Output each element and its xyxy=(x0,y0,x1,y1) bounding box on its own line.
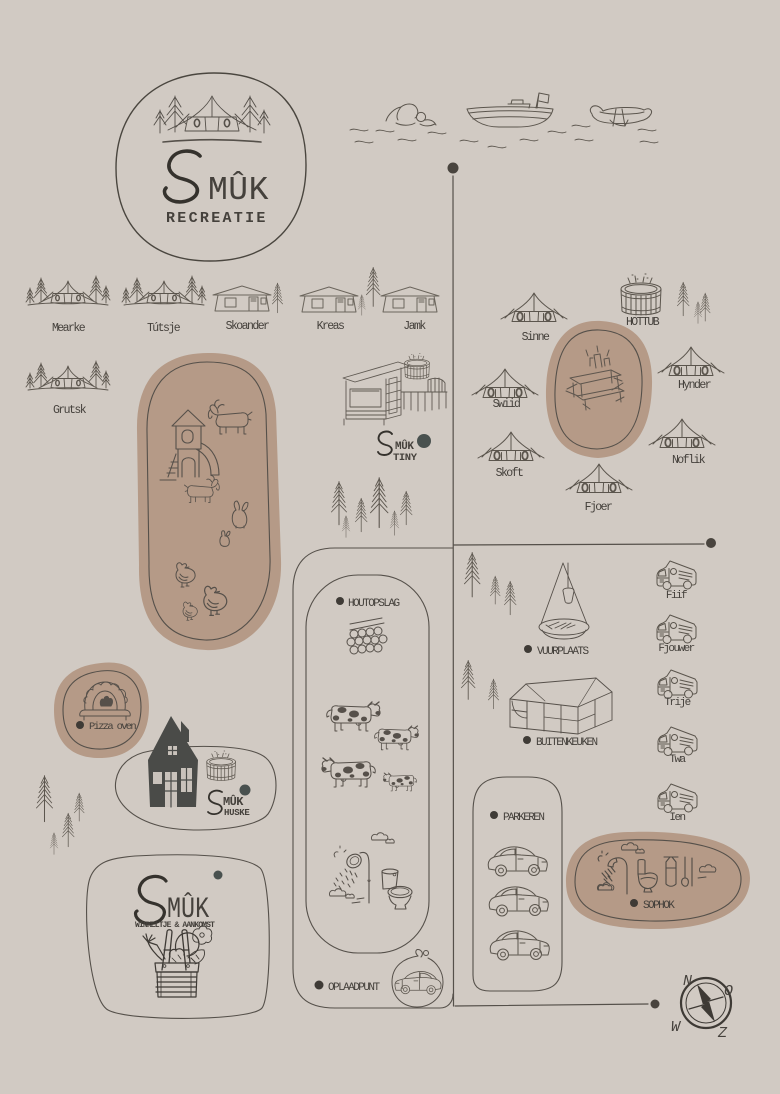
svg-text:Jamk: Jamk xyxy=(403,320,426,333)
svg-text:Skoft: Skoft xyxy=(496,467,523,480)
svg-text:Trije: Trije xyxy=(664,697,690,709)
svg-text:Kreas: Kreas xyxy=(317,320,344,333)
svg-text:Skoander: Skoander xyxy=(226,320,269,333)
svg-text:Fjouwer: Fjouwer xyxy=(658,643,694,655)
svg-text:PARKEREN: PARKEREN xyxy=(503,812,544,824)
svg-text:Ien: Ien xyxy=(669,812,685,824)
svg-text:Twa: Twa xyxy=(669,754,686,766)
svg-text:SOPHOK: SOPHOK xyxy=(643,900,675,912)
svg-text:HOUTOPSLAG: HOUTOPSLAG xyxy=(348,598,399,610)
svg-text:Z: Z xyxy=(717,1025,728,1042)
svg-text:Sinne: Sinne xyxy=(522,331,550,344)
svg-text:N: N xyxy=(683,973,692,990)
svg-text:Fiif: Fiif xyxy=(666,590,687,602)
svg-text:Hynder: Hynder xyxy=(678,379,711,392)
svg-text:WINKELTJE & AANKOMST: WINKELTJE & AANKOMST xyxy=(135,921,215,930)
svg-text:Swiid: Swiid xyxy=(493,398,520,411)
svg-text:BUITENKEUKEN: BUITENKEUKEN xyxy=(536,737,598,749)
svg-text:Grutsk: Grutsk xyxy=(53,404,87,417)
svg-text:VUURPLAATS: VUURPLAATS xyxy=(537,646,589,658)
svg-text:MÛK: MÛK xyxy=(208,171,269,209)
svg-text:O: O xyxy=(724,983,733,1000)
svg-text:TINY: TINY xyxy=(393,452,418,464)
svg-text:OPLAADPUNT: OPLAADPUNT xyxy=(328,982,380,994)
svg-text:RECREATIE: RECREATIE xyxy=(166,210,268,227)
svg-text:HOTTUB: HOTTUB xyxy=(626,316,660,329)
svg-text:Fjoer: Fjoer xyxy=(585,501,612,514)
svg-text:MÛK: MÛK xyxy=(223,794,244,809)
svg-text:HUSKE: HUSKE xyxy=(224,808,250,818)
svg-text:Mearke: Mearke xyxy=(52,322,86,335)
svg-text:Tútsje: Tútsje xyxy=(147,322,181,335)
svg-text:Noflik: Noflik xyxy=(672,454,706,467)
svg-text:Pizza oven: Pizza oven xyxy=(89,721,136,733)
svg-text:MÛK: MÛK xyxy=(395,439,414,453)
